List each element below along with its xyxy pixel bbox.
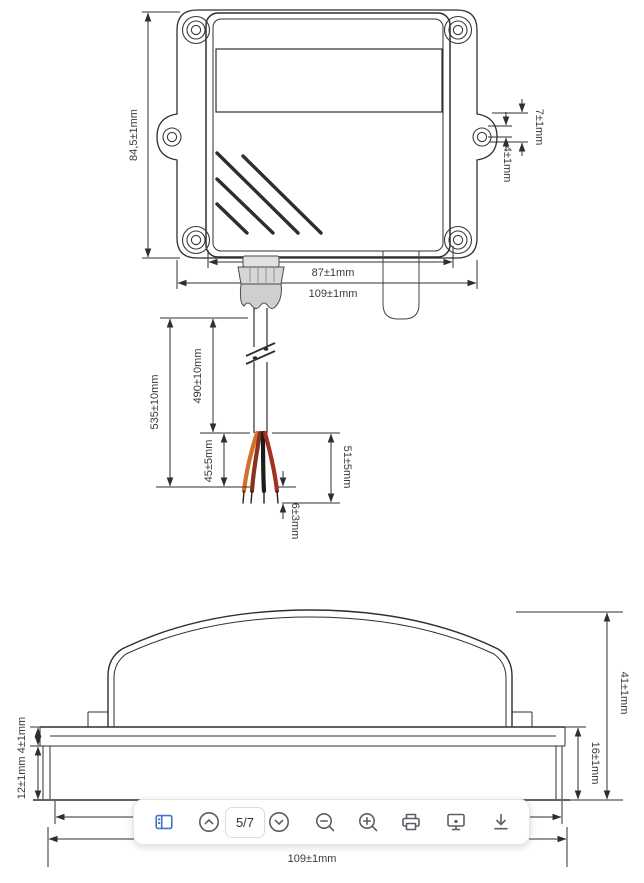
case-body [206,13,450,257]
next-page-button[interactable] [263,806,295,838]
front-view-drawing: 84,5±1mm 7±1mm 4±1mm 87±1mm 109±1mm [0,0,644,560]
dim-cable-split-label: 45±5mm [203,440,215,483]
housing-profile [33,610,570,800]
zoom-in-button[interactable] [352,806,384,838]
dim-side-left [30,727,40,799]
dim-base-height-label: 16±1mm [589,742,601,785]
dim-body-width-label: 87±1mm [312,267,355,279]
dim-ear-hole-label: 4±1mm [501,146,513,183]
dim-cable-sheath-label: 490±10mm [192,349,204,404]
cable-break-symbol [246,343,275,364]
chevron-down-icon [267,810,291,834]
zoom-out-icon [313,810,337,834]
antenna-tab [383,251,419,319]
dim-flange-labels: 12±1mm 4±1mm [16,717,28,799]
wire-fanout [243,433,278,503]
cable-gland [238,256,284,309]
previous-page-button[interactable] [193,806,225,838]
print-button[interactable] [395,806,427,838]
cable [254,308,267,433]
thumbnails-panel-icon [153,811,175,833]
dim-height [142,12,180,258]
presentation-mode-button[interactable] [440,806,472,838]
dim-overall-height-label: 41±1mm [618,672,630,715]
pdf-viewer-page: 84,5±1mm 7±1mm 4±1mm 87±1mm 109±1mm [0,0,644,883]
download-icon [489,810,513,834]
dim-cable-stripped-label: 51±5mm [341,446,353,489]
thumbnails-panel-button[interactable] [148,806,180,838]
dim-cable-overall-label: 535±10mm [149,375,161,430]
chevron-up-icon [197,810,221,834]
page-indicator[interactable]: 5/7 [225,807,265,838]
dim-side-right [516,612,623,800]
dim-side-width-label: 109±1mm [288,853,337,865]
download-button[interactable] [485,806,517,838]
zoom-out-button[interactable] [309,806,341,838]
dim-cable-tip-label: 6±3mm [289,503,301,540]
dim-height-label: 84,5±1mm [128,109,140,161]
pdf-toolbar: 5/7 [133,799,530,845]
dim-overall-width-label: 109±1mm [309,288,358,300]
zoom-in-icon [356,810,380,834]
presentation-icon [444,810,468,834]
print-icon [399,810,423,834]
dim-ear-offset-label: 7±1mm [533,109,545,146]
